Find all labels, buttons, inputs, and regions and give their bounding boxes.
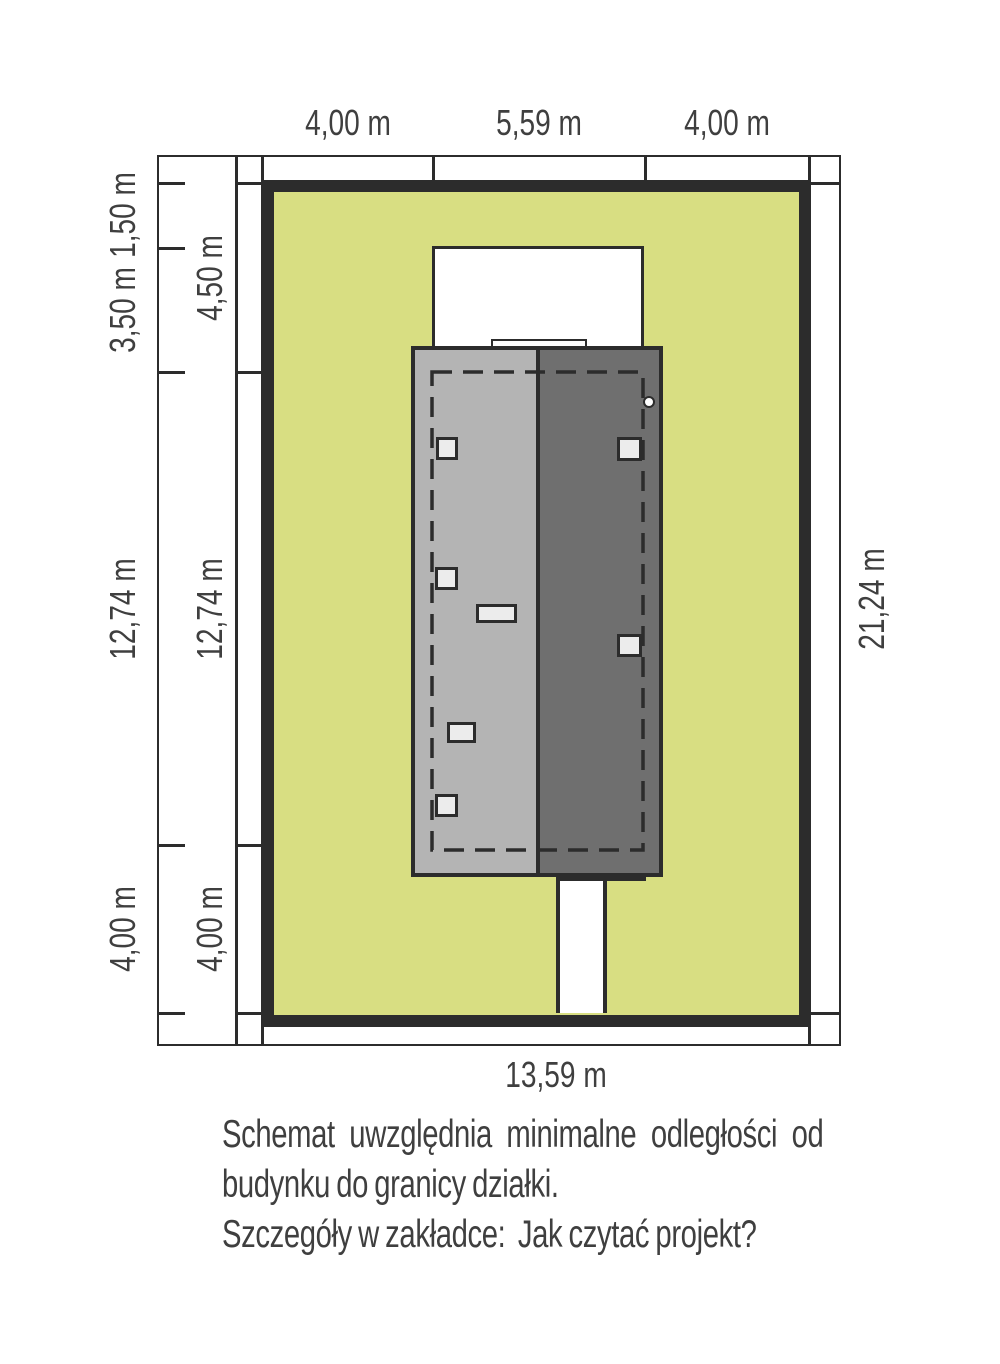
roof-window: [435, 567, 458, 590]
dim-label-left-inner-1: 4,50 m: [193, 223, 227, 332]
dim-label-right: 21,24 m: [855, 544, 889, 653]
dim-label-left-inner-3: 4,00 m: [193, 874, 227, 983]
top-dimension-divider: [432, 155, 435, 182]
dimension-tick: [157, 844, 185, 847]
caption: Schemat uwzględnia minimalne odległości …: [222, 1110, 1000, 1260]
dim-label-left-outer-3: 12,74 m: [106, 554, 140, 663]
dim-label-top-center: 5,59 m: [484, 106, 593, 140]
vent-circle: [643, 396, 655, 408]
roof-window: [436, 437, 458, 460]
dim-label-left-inner-2: 12,74 m: [193, 554, 227, 663]
dimension-tick: [157, 182, 185, 185]
dimension-divider: [808, 1012, 841, 1015]
dim-label-bottom: 13,59 m: [501, 1058, 610, 1092]
dim-label-top-right: 4,00 m: [672, 106, 781, 140]
roof-window: [617, 437, 642, 461]
dimension-tick: [157, 1012, 185, 1015]
dimension-divider: [235, 371, 264, 374]
site-plan-schematic: 4,00 m 5,59 m 4,00 m 1,50 m 3,50 m 12,74…: [0, 0, 1000, 1364]
roof-window: [435, 794, 458, 817]
caption-line-2: budynku do granicy działki.: [222, 1160, 852, 1210]
dimension-column-line: [261, 155, 264, 1046]
dimension-tick: [157, 371, 185, 374]
driveway-path: [556, 877, 607, 1013]
dim-label-left-outer-2: 3,50 m: [106, 255, 140, 364]
roof-window: [447, 722, 476, 743]
dimension-divider: [808, 182, 841, 185]
dimension-column-line: [235, 155, 238, 1046]
dim-label-left-outer-1: 1,50 m: [106, 160, 140, 269]
roof-top-ledge: [491, 339, 587, 348]
caption-line-1: Schemat uwzględnia minimalne odległości …: [222, 1110, 852, 1160]
dimension-divider: [235, 844, 264, 847]
dimension-divider: [235, 182, 264, 185]
caption-line-3: Szczegóły w zakładce: Jak czytać projekt…: [222, 1210, 852, 1260]
top-dimension-divider: [644, 155, 647, 182]
dimension-column-line: [808, 155, 811, 1046]
building-footprint-dashed-outline: [430, 370, 645, 852]
dimension-tick: [157, 247, 185, 250]
roof-window: [617, 634, 642, 657]
dim-label-top-left: 4,00 m: [293, 106, 402, 140]
roof-edge-step-line: [560, 877, 646, 881]
dimension-divider: [235, 1012, 264, 1015]
chimney: [476, 604, 517, 623]
dim-label-left-outer-4: 4,00 m: [106, 874, 140, 983]
terrace: [432, 246, 644, 350]
